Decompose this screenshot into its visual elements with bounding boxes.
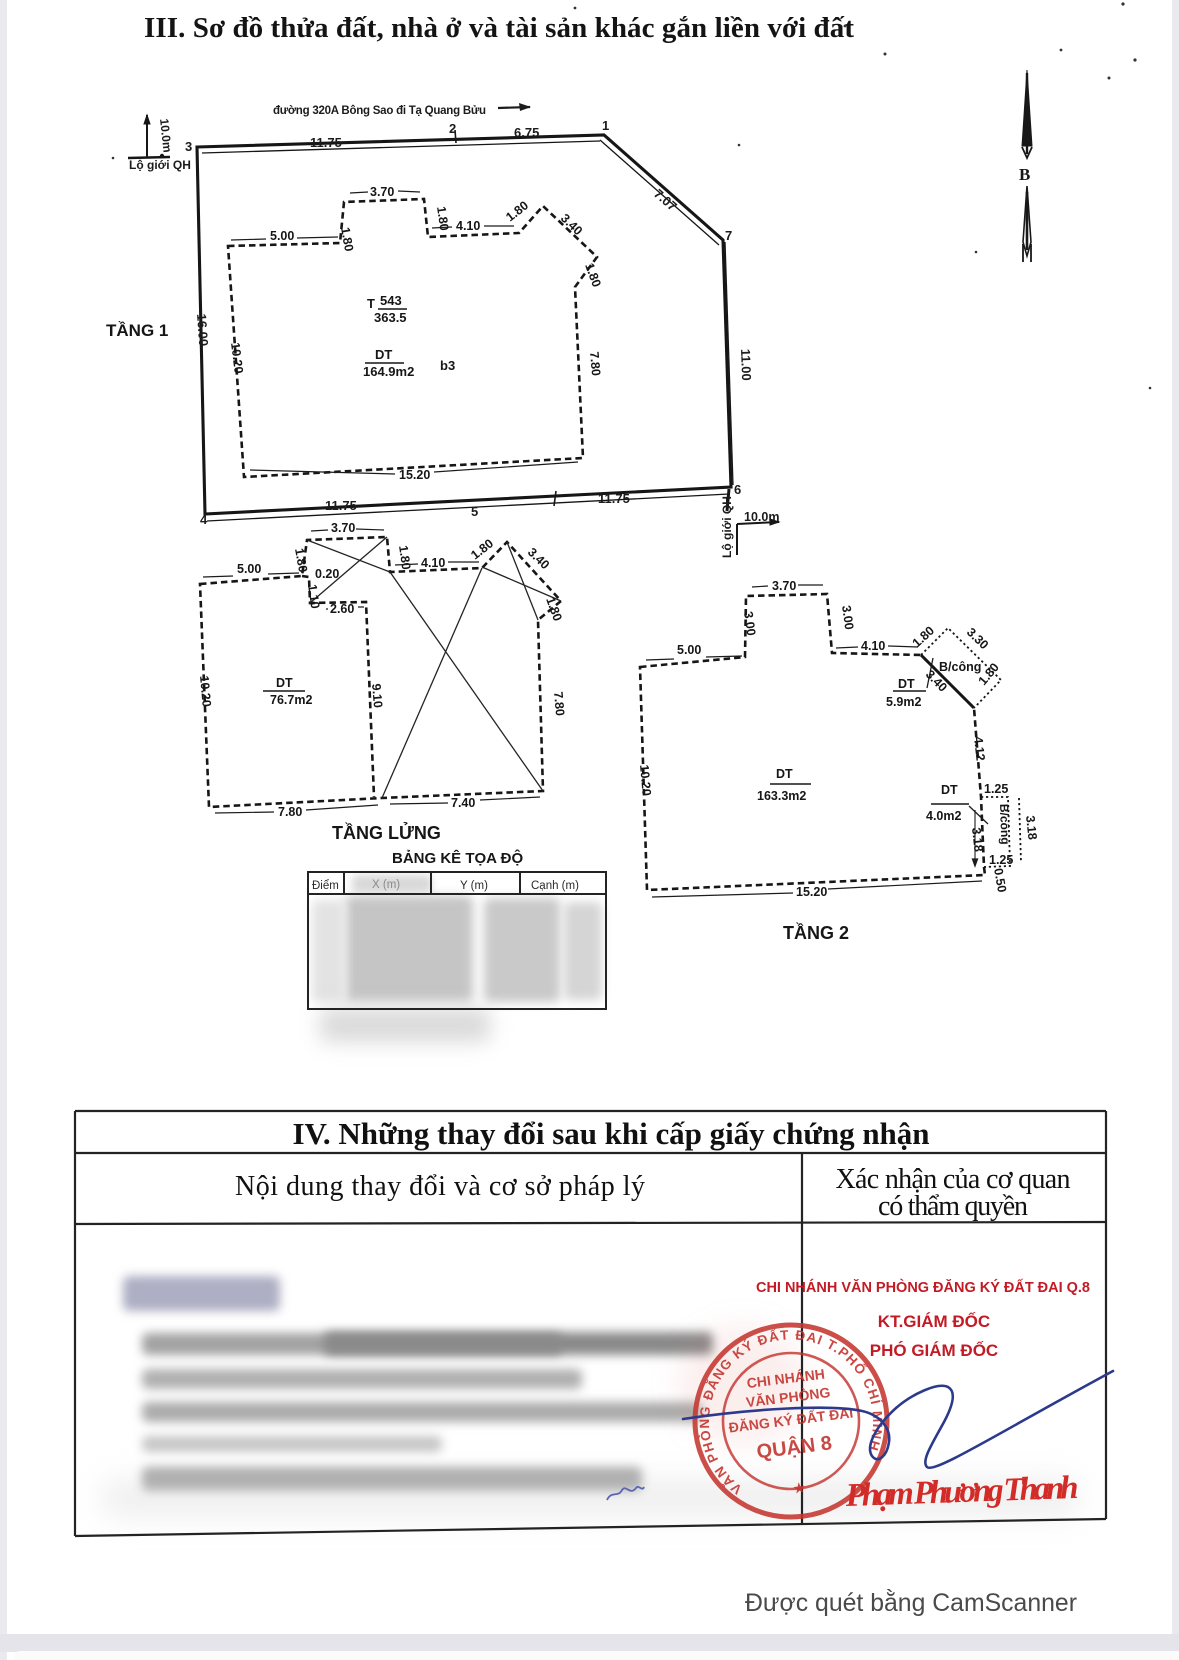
svg-text:X (m): X (m): [372, 879, 400, 891]
svg-text:11.00: 11.00: [738, 349, 754, 381]
svg-text:3.70: 3.70: [370, 185, 394, 199]
svg-text:3.00: 3.00: [741, 610, 758, 636]
svg-text:★: ★: [793, 1480, 807, 1496]
svg-text:DT: DT: [776, 767, 793, 781]
svg-text:QUẬN 8: QUẬN 8: [755, 1430, 833, 1463]
svg-text:1: 1: [602, 118, 609, 133]
svg-text:1.80: 1.80: [582, 261, 603, 289]
svg-text:1.25: 1.25: [989, 853, 1013, 867]
svg-text:3.40: 3.40: [558, 211, 585, 238]
svg-text:163.3m2: 163.3m2: [757, 789, 806, 803]
svg-text:15.20: 15.20: [399, 468, 430, 482]
svg-text:2.60: 2.60: [330, 602, 354, 616]
svg-text:7.80: 7.80: [278, 805, 302, 819]
svg-text:4.10: 4.10: [421, 556, 445, 570]
svg-text:3.18: 3.18: [1023, 815, 1039, 841]
svg-text:0.20: 0.20: [315, 567, 339, 581]
svg-text:16.00: 16.00: [194, 313, 211, 347]
svg-text:76.7m2: 76.7m2: [270, 693, 312, 707]
svg-text:Lộ giới QH: Lộ giới QH: [720, 496, 734, 558]
svg-text:6: 6: [734, 482, 741, 497]
svg-text:4.10: 4.10: [861, 639, 885, 653]
svg-text:10.20: 10.20: [197, 675, 214, 707]
svg-text:164.9m2: 164.9m2: [363, 364, 414, 379]
svg-text:TẦNG 2: TẦNG 2: [783, 922, 849, 943]
svg-text:Nội dung thay đổi và cơ sở phá: Nội dung thay đổi và cơ sở pháp lý: [235, 1171, 645, 1202]
svg-text:B/công: B/công: [939, 660, 981, 674]
svg-text:3.70: 3.70: [772, 579, 796, 593]
svg-text:Được quét bằng CamScanner: Được quét bằng CamScanner: [745, 1590, 1077, 1617]
svg-text:PHÓ GIÁM ĐỐC: PHÓ GIÁM ĐỐC: [870, 1340, 998, 1360]
svg-text:10.20: 10.20: [637, 764, 654, 796]
svg-text:543: 543: [380, 293, 402, 308]
svg-text:7.40: 7.40: [451, 796, 475, 810]
svg-text:1.25: 1.25: [984, 782, 1008, 796]
svg-text:TẦNG LỬNG: TẦNG LỬNG: [332, 822, 441, 843]
svg-text:7.80: 7.80: [587, 351, 603, 377]
svg-text:có thẩm quyền: có thẩm quyền: [878, 1191, 1028, 1222]
svg-text:5.00: 5.00: [237, 562, 261, 576]
svg-text:7.80: 7.80: [551, 691, 567, 717]
svg-text:7: 7: [725, 228, 732, 243]
svg-text:b3: b3: [440, 358, 455, 373]
svg-text:DT: DT: [375, 347, 392, 362]
svg-text:7.07: 7.07: [651, 186, 680, 214]
svg-text:Y (m): Y (m): [460, 880, 488, 892]
svg-text:10.0m: 10.0m: [744, 510, 779, 524]
svg-text:đường 320A Bông Sao đi Tạ Qu: đường 320A Bông Sao đi Tạ Quang Bửu: [273, 105, 486, 117]
svg-text:0.50: 0.50: [991, 867, 1009, 893]
svg-text:10.20: 10.20: [228, 342, 246, 375]
svg-text:6.75: 6.75: [514, 125, 539, 140]
svg-text:1.80: 1.80: [396, 544, 413, 570]
svg-text:363.5: 363.5: [374, 310, 407, 325]
svg-text:Điểm: Điểm: [312, 880, 339, 892]
svg-text:1.10: 1.10: [305, 583, 322, 609]
svg-text:III. Sơ đồ thửa đất, nhà ở và: III. Sơ đồ thửa đất, nhà ở và tài sản kh…: [144, 12, 854, 44]
svg-text:DT: DT: [941, 783, 958, 797]
svg-text:5: 5: [471, 504, 478, 519]
svg-text:B/công: B/công: [997, 804, 1012, 845]
svg-text:3: 3: [185, 139, 192, 154]
svg-text:4.0m2: 4.0m2: [926, 809, 961, 823]
svg-text:1.80: 1.80: [543, 595, 564, 623]
svg-text:DT: DT: [898, 677, 915, 691]
svg-text:3.70: 3.70: [331, 521, 355, 535]
svg-text:3.18: 3.18: [969, 827, 985, 853]
svg-text:1.80: 1.80: [338, 226, 356, 252]
svg-text:T: T: [367, 296, 375, 311]
svg-text:3.00: 3.00: [839, 604, 856, 630]
svg-text:Lộ giới QH: Lộ giới QH: [129, 158, 191, 172]
svg-text:10.0m: 10.0m: [157, 118, 174, 153]
svg-text:11.75: 11.75: [598, 491, 630, 506]
svg-text:3.40: 3.40: [525, 545, 552, 572]
svg-text:5.00: 5.00: [677, 643, 701, 657]
svg-text:IV. Những thay đổi sau khi cấp: IV. Những thay đổi sau khi cấp giấy chứn…: [293, 1116, 930, 1151]
svg-text:11.75: 11.75: [325, 498, 357, 513]
svg-text:DT: DT: [276, 676, 293, 690]
svg-text:15.20: 15.20: [796, 885, 827, 899]
svg-text:9.10: 9.10: [369, 683, 385, 709]
svg-text:B: B: [1019, 165, 1030, 184]
svg-text:CHI NHÁNH VĂN PHÒNG ĐĂNG KÝ ĐẤ: CHI NHÁNH VĂN PHÒNG ĐĂNG KÝ ĐẤT ĐAI Q.8: [756, 1278, 1090, 1296]
svg-text:4.12: 4.12: [971, 736, 987, 762]
svg-text:Phạm Phương Thanh: Phạm Phương Thanh: [844, 1470, 1079, 1514]
svg-text:4: 4: [200, 512, 208, 527]
svg-text:1.80: 1.80: [292, 547, 310, 573]
svg-text:4.10: 4.10: [456, 219, 480, 233]
svg-text:Cạnh (m): Cạnh (m): [531, 880, 579, 892]
svg-text:TẦNG 1: TẦNG 1: [106, 321, 168, 340]
svg-text:1.80: 1.80: [910, 624, 937, 651]
svg-text:KT.GIÁM ĐỐC: KT.GIÁM ĐỐC: [878, 1311, 990, 1331]
svg-text:BẢNG KÊ TỌA ĐỘ: BẢNG KÊ TỌA ĐỘ: [392, 849, 523, 867]
svg-text:2: 2: [449, 121, 456, 136]
svg-text:11.75: 11.75: [310, 135, 342, 150]
svg-text:5.00: 5.00: [270, 229, 294, 243]
svg-text:1.80: 1.80: [503, 198, 531, 224]
svg-text:5.9m2: 5.9m2: [886, 695, 921, 709]
